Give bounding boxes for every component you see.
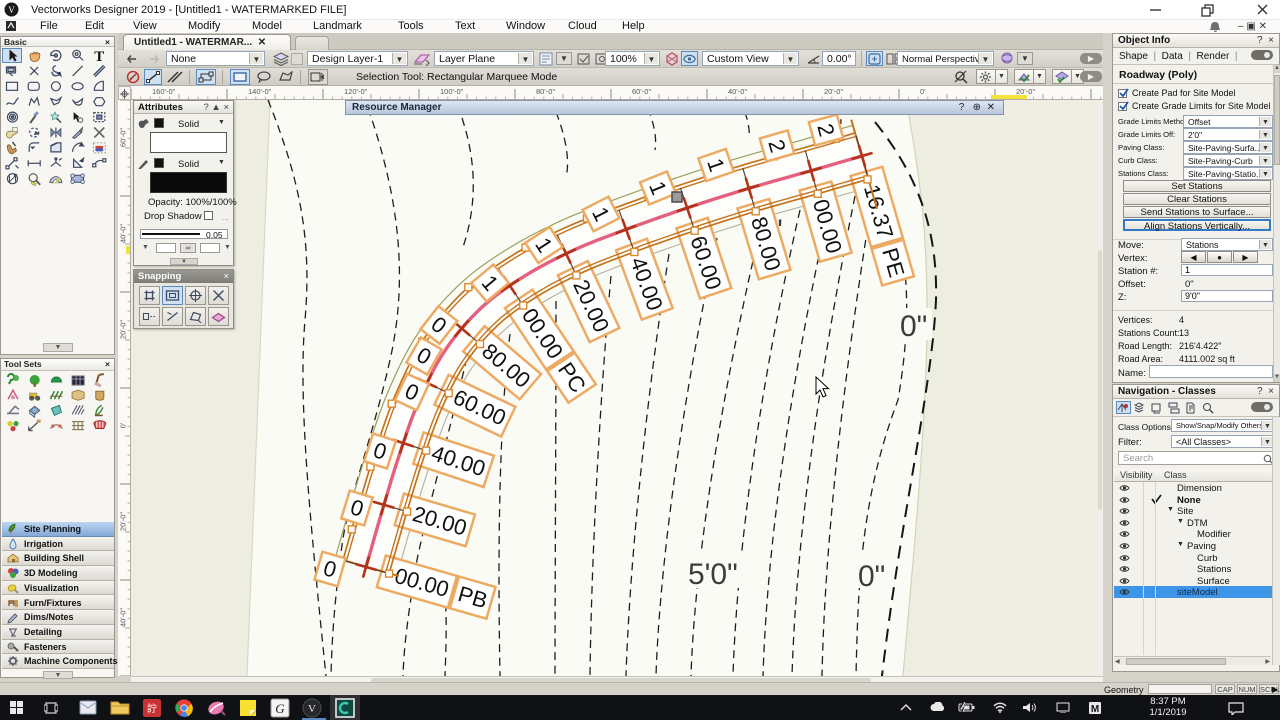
svg-text:V: V [308,703,316,715]
svg-text:5'0": 5'0" [688,558,738,591]
svg-text:M: M [1091,704,1099,714]
svg-text:G: G [275,701,285,716]
svg-text:詝: 詝 [147,702,157,715]
svg-text:0": 0" [858,560,885,593]
svg-text:T: T [94,49,104,65]
svg-text:V: V [8,5,15,15]
svg-text:0": 0" [900,310,927,343]
